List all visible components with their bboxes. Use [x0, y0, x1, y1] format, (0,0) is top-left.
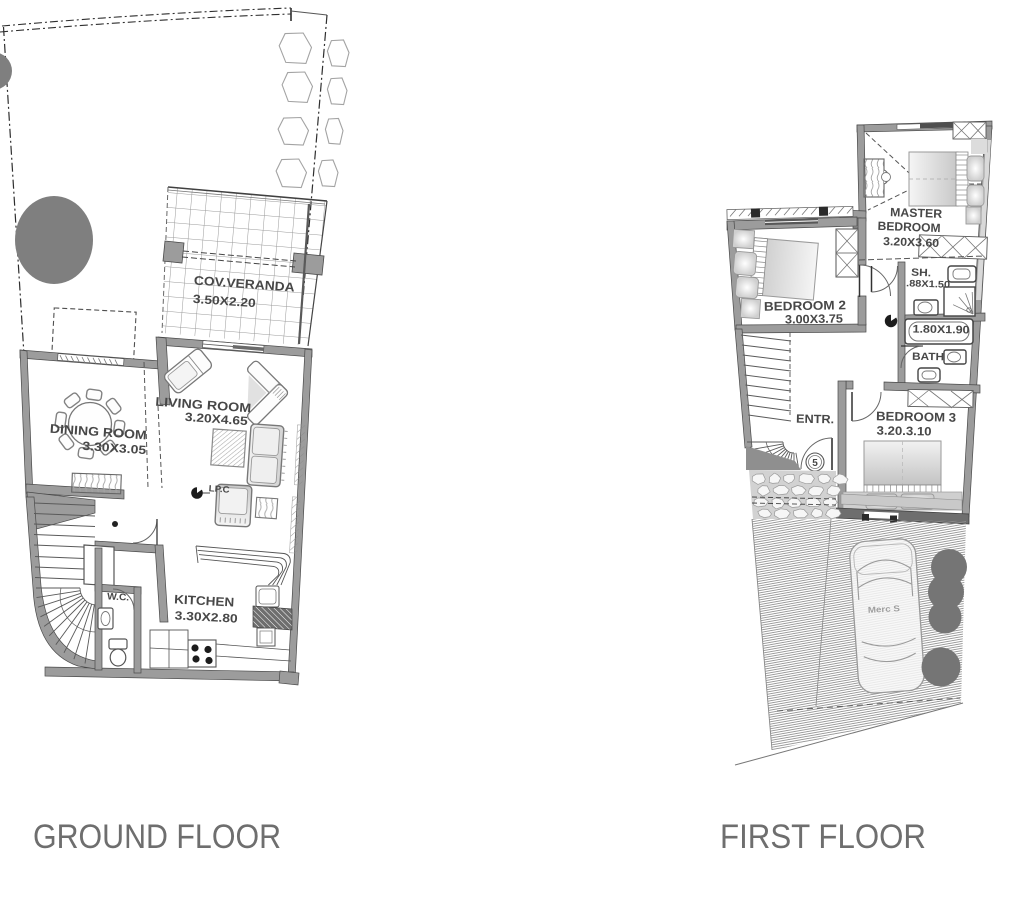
svg-text:FIRST FLOOR: FIRST FLOOR [720, 818, 926, 856]
svg-text:GROUND FLOOR: GROUND FLOOR [33, 818, 281, 856]
svg-text:.88X1.50: .88X1.50 [906, 278, 950, 291]
svg-text:KITCHEN: KITCHEN [174, 592, 235, 609]
svg-text:3.20.3.10: 3.20.3.10 [876, 424, 932, 439]
svg-text:1.80X1.90: 1.80X1.90 [912, 324, 969, 337]
svg-text:BEDROOM 3: BEDROOM 3 [876, 409, 956, 424]
svg-text:BATH: BATH [912, 351, 944, 364]
svg-text:MASTER: MASTER [890, 205, 943, 221]
svg-text:3.30X2.80: 3.30X2.80 [174, 608, 238, 625]
svg-text:Merc S: Merc S [868, 603, 901, 615]
svg-text:3.00X3.75: 3.00X3.75 [785, 311, 844, 326]
svg-text:ENTR.: ENTR. [796, 412, 834, 427]
svg-text:BEDROOM: BEDROOM [877, 219, 940, 235]
svg-text:SH.: SH. [911, 267, 931, 280]
svg-text:3.20X3.60: 3.20X3.60 [883, 236, 939, 250]
svg-text:5: 5 [812, 458, 818, 469]
svg-text:W.C.: W.C. [107, 591, 130, 603]
svg-text:LP.C: LP.C [208, 483, 230, 494]
